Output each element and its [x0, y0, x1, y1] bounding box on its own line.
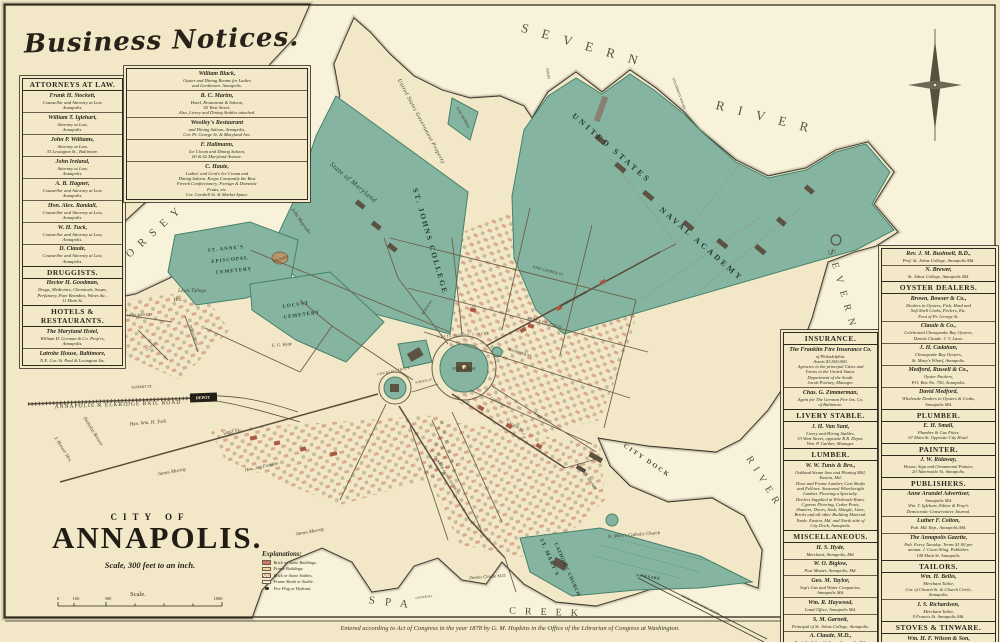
entry-line: Democratic Conservative Journal. — [883, 509, 994, 514]
entry-line: P.O. Box No. 750, Annapolis. — [883, 380, 994, 385]
section-heading: OYSTER DEALERS. — [882, 281, 995, 294]
entry-name: N. Brewer, — [883, 267, 994, 274]
directory-entry: Latrobe House, Baltimore,N.E. Cor. St. P… — [23, 348, 122, 365]
entry-line: Post Master, Annapolis, Md. — [785, 568, 876, 573]
entry-line: Annapolis. — [24, 237, 121, 242]
entry-line: Merchant, Annapolis, Md. — [785, 552, 876, 557]
section-heading: ATTORNEYS AT LAW. — [23, 79, 122, 91]
entry-name: David Medford, — [883, 389, 994, 396]
directory-entry: Wm. R. Haywood,Land Office, Annapolis Md… — [784, 597, 877, 614]
directory-section: ATTORNEYS AT LAW.Frank H. Stockett,Couns… — [23, 79, 122, 266]
directory-entry: E. H. Small,Plumber & Gas Fitter,67 Main… — [882, 422, 995, 443]
legend-swatch-icon — [262, 573, 271, 578]
title-block: CITY OF ANNAPOLIS. Scale, 300 feet to an… — [52, 512, 248, 570]
entry-name: F. Hallmann, — [128, 142, 306, 149]
entry-line: 67 Main St. Opposite City Hotel. — [883, 435, 994, 440]
entry-name: J. H. Van Sant, — [785, 424, 876, 431]
entry-name: John P. Williams, — [24, 137, 121, 144]
entry-name: John Ireland, — [24, 159, 121, 166]
directory-section: LUMBER.W. W. Tunis & Bro.,Oakland Steam … — [784, 448, 877, 530]
directory-entry: The Franklin Fire Insurance Co.of Philad… — [784, 345, 877, 387]
entry-name: A. B. Hagner, — [24, 181, 121, 188]
entry-name: Brown, Bowser & Co., — [883, 296, 994, 303]
directory-entry: The Maryland Hotel,William H. Gorman & C… — [23, 327, 122, 348]
directory-entry: John P. Williams,Attorney at Law,35 Lexi… — [23, 134, 122, 156]
entry-line: Drugs, Medicines, Chemicals, Soaps, — [24, 287, 121, 292]
legend-swatch-icon — [262, 567, 271, 572]
entry-line: St. Johns College, Annapolis Md. — [883, 274, 994, 279]
directory-restaurants: William Black,Oyster and Dining Rooms fo… — [126, 68, 308, 200]
entry-line: and Gentlemen. Annapolis. — [128, 83, 306, 88]
directory-section: DRUGGISTS.Hector H. Goodman,Drugs, Medic… — [23, 266, 122, 305]
directory-entry: Claude & Co.,Celebrated Chesapeake Bay O… — [882, 321, 995, 343]
legend-label: Brick or Stone Buildings. — [274, 560, 317, 565]
map-label: 100 — [73, 596, 81, 601]
entry-line: Dennis Claude. J. V. Laws. — [883, 336, 994, 341]
directory-section: INSURANCE.The Franklin Fire Insurance Co… — [784, 333, 877, 409]
entry-name: Woolley's Restaurant — [128, 120, 306, 127]
entry-line: Annapolis. — [24, 171, 121, 176]
entry-line: Wm. P. Gaither, Manager. — [785, 441, 876, 446]
copyright-line: Entered according to Act of Congress in … — [180, 625, 840, 632]
directory-entry: Brown, Bowser & Co.,Dealers in Oysters, … — [882, 294, 995, 320]
legend-label: Brick or Stone Stables. — [274, 573, 313, 578]
entry-name: Chas. G. Zimmerman, — [785, 390, 876, 397]
legend: Explanations: Brick or Stone Buildings.F… — [262, 551, 362, 592]
entry-line: Annapolis. — [24, 193, 121, 198]
directory-section: PUBLISHERS.Anne Arundel Advertiser,Annap… — [882, 477, 995, 560]
entry-name: J. W. Ridaway, — [883, 457, 994, 464]
legend-label: Fire Plug or Hydrant. — [274, 586, 312, 591]
map-label: Lewis Tidings — [177, 289, 206, 294]
directory-entry: Medford, Russell & Co.,Oyster Packers,P.… — [882, 365, 995, 387]
entry-name: Latrobe House, Baltimore, — [24, 351, 121, 358]
entry-line: St. Mary's Wharf, Annapolis. — [883, 358, 994, 363]
section-heading: PLUMBER. — [882, 409, 995, 422]
entry-line: of Baltimore. — [785, 402, 876, 407]
section-heading: HOTELS & RESTAURANTS. — [23, 305, 122, 327]
directory-section: PLUMBER.E. H. Small,Plumber & Gas Fitter… — [882, 409, 995, 443]
legend-item: Fire Plug or Hydrant. — [262, 585, 362, 592]
scale-note: Scale, 300 feet to an inch. — [52, 560, 248, 570]
entry-line: Also, Livery and Dining Stables attached… — [128, 110, 306, 115]
directory-entry: J. H. Cadahan,Chesapeake Bay Oysters,St.… — [882, 343, 995, 365]
entry-name: The Annapolis Gazette, — [883, 535, 994, 542]
directory-entry: J. W. Ridaway,House, Sign and Ornamental… — [882, 456, 995, 477]
entry-name: H. S. Hyde, — [785, 545, 876, 552]
directory-attorneys-druggists-hotels: ATTORNEYS AT LAW.Frank H. Stockett,Couns… — [22, 78, 123, 366]
entry-line: 9 Francis St. Annapolis Md. — [883, 614, 994, 619]
entry-line: Prof. St. Johns College, Annapolis Md. — [883, 258, 994, 263]
entry-name: William Black, — [128, 71, 306, 78]
entry-name: Wm. H. Bellis, — [883, 574, 994, 581]
directory-entry: W. H. Tuck,Counsellor and Attorney at La… — [23, 222, 122, 244]
entry-line: Foot of Pr. George St. — [883, 314, 994, 319]
directory-entry: I. S. Richardson,Merchant Tailor,9 Franc… — [882, 599, 995, 621]
map-label: Hrs. — [173, 298, 183, 303]
entry-line: 60 & 62 Maryland Avenue. — [128, 154, 306, 159]
legend-swatch-icon — [265, 587, 269, 591]
directory-oyster-trades: Rev. J. M. Bushnell, B.D.,Prof. St. John… — [881, 248, 996, 642]
directory-entry: Anne Arundel Advertiser,Annapolis Md.Wm.… — [882, 490, 995, 516]
entry-name: The Franklin Fire Insurance Co. — [785, 347, 876, 354]
directory-entry: H. S. Hyde,Merchant, Annapolis, Md. — [784, 543, 877, 559]
legend-heading: Explanations: — [262, 551, 362, 558]
section-heading: DRUGGISTS. — [23, 266, 122, 279]
entry-name: E. H. Small, — [883, 423, 994, 430]
entry-name: Medford, Russell & Co., — [883, 367, 994, 374]
entry-line: Annapolis Md. — [883, 402, 994, 407]
entry-name: Claude & Co., — [883, 323, 994, 330]
page-title: ANNAPOLIS. — [52, 522, 248, 554]
directory-entry: John Ireland,Attorney at Law,Annapolis. — [23, 156, 122, 178]
section-heading: MISCELLANEOUS. — [784, 530, 877, 543]
entry-line: Cor. Cornhill St. & Market Space. — [128, 192, 306, 197]
entry-line: 20 Tabernacle St. Annapolis. — [883, 469, 994, 474]
directory-entry: The Annapolis Gazette,Pub. Every Tuesday… — [882, 533, 995, 560]
directory-entry: Luther F. Colton,Pub. Md. Rep., Annapoli… — [882, 516, 995, 533]
map-label: 1000 — [214, 596, 224, 601]
entry-name: The Maryland Hotel, — [24, 329, 121, 336]
directory-entry: Chas. G. Zimmerman,Agent for The German … — [784, 387, 877, 409]
directory-section: LIVERY STABLE.J. H. Van Sant,Livery and … — [784, 409, 877, 448]
directory-section: Rev. J. M. Bushnell, B.D.,Prof. St. John… — [882, 249, 995, 281]
legend-label: Frame Sheds or Stable. — [274, 579, 314, 584]
entry-name: William T. Iglehart, — [24, 115, 121, 122]
section-heading: PAINTER. — [882, 443, 995, 456]
map-sheet: SEVERNRIVERSEVERNRIVERDORSEYCREEKSPACREE… — [0, 0, 1000, 642]
entry-name: Hon. Alex. Randall, — [24, 203, 121, 210]
entry-line: Land Office, Annapolis Md. — [785, 607, 876, 612]
directory-entry: J. H. Van Sant,Livery and Hiring Stables… — [784, 422, 877, 448]
directory-entry: Woolley's Restaurantand Dining Saloon, A… — [127, 117, 307, 139]
directory-entry: N. Brewer,St. Johns College, Annapolis M… — [882, 265, 995, 282]
entry-line: Annapolis. — [24, 215, 121, 220]
map-label: STATE HOUSE — [452, 367, 476, 371]
entry-name: Geo. M. Taylor, — [785, 578, 876, 585]
directory-section: PAINTER.J. W. Ridaway,House, Sign and Or… — [882, 443, 995, 477]
section-heading: LIVERY STABLE. — [784, 409, 877, 422]
entry-line: 108 Main St. Annapolis. — [883, 553, 994, 558]
directory-entry: F. Hallmann,Ice Cream and Dining Saloon,… — [127, 139, 307, 161]
directory-section: OYSTER DEALERS.Brown, Bowser & Co.,Deale… — [882, 281, 995, 408]
entry-name: Anne Arundel Advertiser, — [883, 491, 994, 498]
entry-name: Luther F. Colton, — [883, 518, 994, 525]
legend-swatch-icon — [262, 580, 271, 585]
section-heading: PUBLISHERS. — [882, 477, 995, 490]
directory-section: STOVES & TINWARE.Wm. H. F. Wilson & Son,… — [882, 621, 995, 642]
entry-line: Jacob Portney, Manager. — [785, 380, 876, 385]
section-heading: TAILORS. — [882, 560, 995, 573]
entry-name: Hector H. Goodman, — [24, 280, 121, 287]
entry-line: Cor. Pr. George St. & Maryland Ave. — [128, 132, 306, 137]
directory-entry: C. Haute,Ladies' and Gent's Ice Cream an… — [127, 161, 307, 199]
entry-name: Wm. R. Haywood, — [785, 600, 876, 607]
directory-section: TAILORS.Wm. H. Bellis,Merchant Tailor,Co… — [882, 560, 995, 621]
section-heading: INSURANCE. — [784, 333, 877, 345]
map-label: 300 — [105, 596, 113, 601]
map-label: Scale. — [130, 591, 146, 598]
entry-line: Bricks and all other Building Material. — [785, 512, 876, 517]
directory-section: HOTELS & RESTAURANTS.The Maryland Hotel,… — [23, 305, 122, 365]
entry-name: W. H. Tuck, — [24, 225, 121, 232]
entry-name: W. O. Biglow, — [785, 561, 876, 568]
directory-insurance-livery-lumber-misc: INSURANCE.The Franklin Fire Insurance Co… — [783, 332, 878, 642]
directory-entry: Wm. H. Bellis,Merchant Tailor,Cor. of Ch… — [882, 573, 995, 599]
entry-name: A. Claude, M.D., — [785, 633, 876, 640]
entry-name: W. W. Tunis & Bro., — [785, 463, 876, 470]
directory-entry: Frank H. Stockett,Counsellor and Attorne… — [23, 91, 122, 112]
legend-label: Frame Buildings. — [274, 566, 304, 571]
entry-line: 11 Main St. — [24, 298, 121, 303]
entry-name: Rev. J. M. Bushnell, B.D., — [883, 251, 994, 258]
section-heading: LUMBER. — [784, 448, 877, 461]
entry-line: Annapolis Md. — [785, 590, 876, 595]
directory-entry: A. B. Hagner,Counsellor and Attorney at … — [23, 178, 122, 200]
entry-name: I. S. Richardson, — [883, 602, 994, 609]
directory-entry: B. C. Martin,Hotel, Restaurant & Saloon,… — [127, 90, 307, 117]
entry-name: Wm. H. F. Wilson & Son, — [883, 636, 994, 642]
entry-line: N.E. Cor. St. Paul & Lexington Sts. — [24, 358, 121, 363]
entry-line: Annapolis. — [24, 105, 121, 110]
directory-entry: W. W. Tunis & Bro.,Oakland Steam Saw and… — [784, 461, 877, 530]
directory-entry: William T. Iglehart,Attorney at Law,Anna… — [23, 112, 122, 134]
entry-line: City Dock, Annapolis. — [785, 523, 876, 528]
legend-swatch-icon — [262, 560, 271, 565]
directory-entry: D. Claude,Counsellor and Attorney at Law… — [23, 244, 122, 266]
entry-name: J. H. Cadahan, — [883, 345, 994, 352]
entry-line: Annapolis. — [24, 341, 121, 346]
section-heading: STOVES & TINWARE. — [882, 621, 995, 634]
entry-line: Annapolis. — [883, 592, 994, 597]
directory-section: William Black,Oyster and Dining Rooms fo… — [127, 69, 307, 199]
directory-entry: A. Claude, M.D.,Prof. St. Johns College,… — [784, 631, 877, 642]
entry-line: Annapolis. — [24, 127, 121, 132]
map-label: DEPOT — [196, 395, 211, 401]
directory-entry: Rev. J. M. Bushnell, B.D.,Prof. St. John… — [882, 249, 995, 265]
directory-entry: Hon. Alex. Randall,Counsellor and Attorn… — [23, 200, 122, 222]
entry-name: B. C. Martin, — [128, 93, 306, 100]
entry-name: D. Claude, — [24, 246, 121, 253]
directory-entry: Geo. M. Taylor,Sup't Gas and Water Compa… — [784, 575, 877, 597]
entry-name: Frank H. Stockett, — [24, 93, 121, 100]
directory-entry: Hector H. Goodman,Drugs, Medicines, Chem… — [23, 279, 122, 305]
entry-name: C. Haute, — [128, 164, 306, 171]
entry-line: Pub. Md. Rep., Annapolis Md. — [883, 525, 994, 530]
directory-entry: William Black,Oyster and Dining Rooms fo… — [127, 69, 307, 90]
directory-entry: W. O. Biglow,Post Master, Annapolis, Md. — [784, 559, 877, 576]
entry-line: Annapolis. — [24, 259, 121, 264]
entry-name: S. M. Garnett, — [785, 617, 876, 624]
directory-entry: David Medford,Wholesale Dealers in Oyste… — [882, 387, 995, 409]
entry-line: 35 Lexington St., Baltimore. — [24, 149, 121, 154]
directory-entry: Wm. H. F. Wilson & Son,Dealers in Stoves… — [882, 634, 995, 642]
